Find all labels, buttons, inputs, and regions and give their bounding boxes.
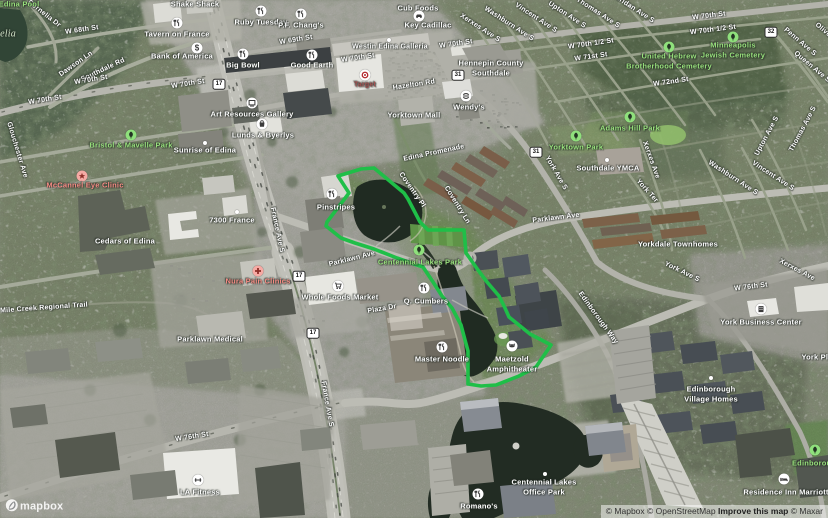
svg-text:mapbox: mapbox: [20, 501, 64, 513]
